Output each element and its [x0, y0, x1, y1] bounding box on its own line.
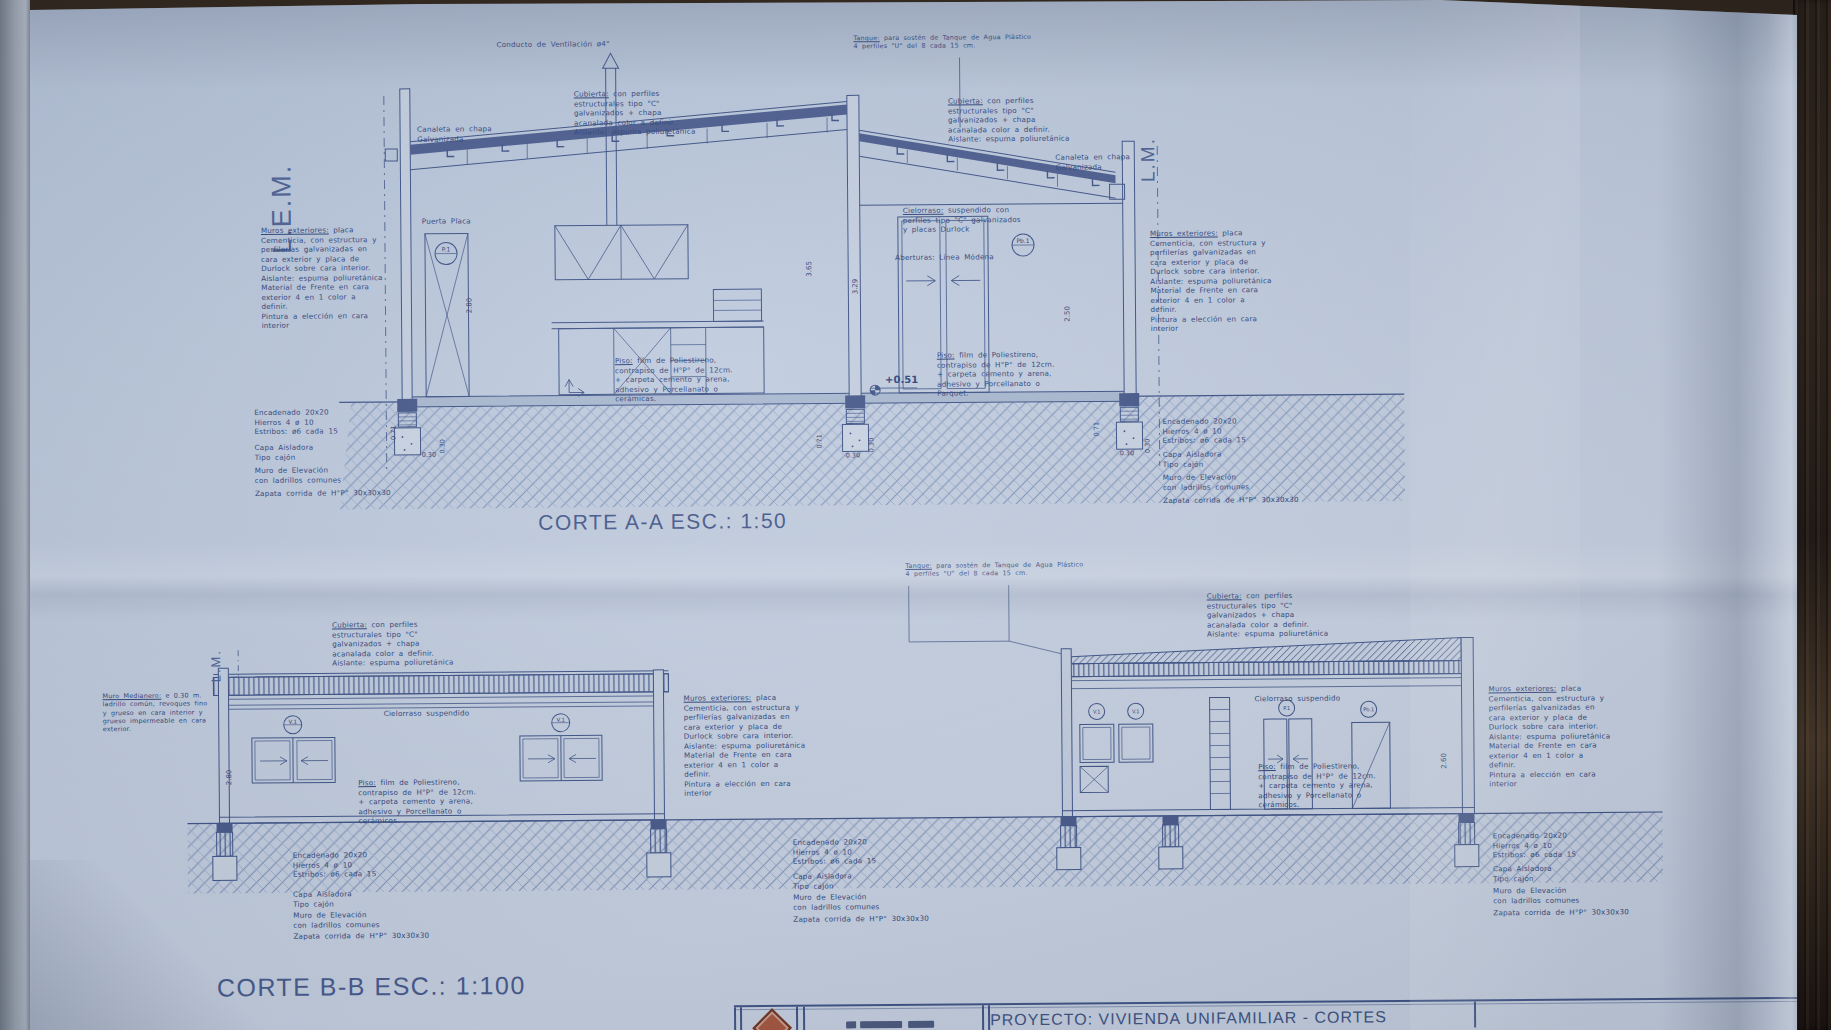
annotation-stemwall-left-b: Muro de Elevación con ladrillos comunes [293, 910, 380, 930]
annotation-roof-left-b: Cubierta: con perfiles estructurales tip… [332, 620, 454, 668]
label-lm-b: L.M. [208, 649, 223, 682]
annotation-floor-left-a: Piso: film de Poliestireno, contrapiso d… [615, 355, 733, 403]
annotation-vent-duct: Conducto de Ventilación ø4" [496, 39, 609, 49]
project-title: PROYECTO: VIVIENDA UNIFAMILIAR - CORTES [990, 1008, 1387, 1029]
dim-030: 0.30 [1120, 449, 1135, 457]
wall-center-a [847, 95, 861, 398]
dim-071: 0.71 [815, 434, 823, 449]
annotation-dampproof-center-b: Capa Aisladora Tipo cajón [793, 871, 852, 890]
footing-left-a [394, 399, 420, 455]
dim-071: 0.71 [1092, 422, 1100, 437]
sheet-content: P.1 Pb.1 V.1 V.1 V.1 V.1 P.1 Pb.1 Conduc… [0, 0, 1831, 1030]
vent-duct [602, 53, 619, 225]
dim-030: 0.30 [439, 439, 447, 454]
annotation-footing-left-b: Zapata corrida de H°P° 30x30x30 [293, 931, 429, 942]
annotation-ceiling-right-b: Cielorraso suspendido [1255, 694, 1341, 704]
annotation-beam-right-b: Encadenado 20x20 Hierros 4 ø 10 Estribos… [1493, 831, 1577, 860]
annotation-footing-right-b: Zapata corrida de H°P° 30x30x30 [1493, 907, 1629, 918]
section-title-b: CORTE B-B ESC.: 1:100 [217, 971, 526, 1002]
door-symbol-label: Pb.1 [1363, 706, 1374, 712]
dim-030: 0.30 [422, 451, 437, 459]
footing-right-a [1116, 393, 1142, 449]
annotation-floor-right-a: Piso: film de Poliestireno, contrapiso d… [937, 350, 1055, 398]
annotation-tank-a: Tanque: para sostén de Tanque de Agua Pl… [853, 33, 1031, 51]
annotation-walls-right-b: Muros exteriores: placa Cementicia, con … [1488, 683, 1610, 788]
annotation-gutter-right-a: Canaleta en chapa Galvanizada [1055, 152, 1130, 172]
annotation-floor-right-b: Piso: film de Poliestireno, contrapiso d… [1258, 761, 1376, 809]
window-symbol-label: V.1 [289, 719, 297, 725]
dim-280-b: 2.80 [225, 770, 233, 786]
annotation-openings-a: Aberturas: Línea Módena [895, 252, 994, 262]
dim-030: 0.30 [1144, 439, 1152, 454]
level-label: +0.51 [885, 374, 918, 385]
door-symbol-label: Pb.1 [1016, 237, 1029, 244]
annotation-dampproof-right-a: Capa Aisladora Tipo cajón [1163, 449, 1222, 468]
annotation-walls-left-a: Muros exteriores: placa Cementicia, con … [261, 225, 383, 330]
wall-right-a [1122, 141, 1136, 396]
annotation-tank-b: Tanque: para sostén de Tanque de Agua Pl… [905, 561, 1083, 579]
paper-stack-edge [0, 0, 30, 1030]
annotation-stemwall-center-b: Muro de Elevación con ladrillos comunes [793, 892, 880, 912]
dim-280-a: 2.80 [465, 298, 473, 314]
annotation-footing-center-b: Zapata corrida de H°P° 30x30x30 [793, 914, 929, 925]
dim-030: 0.30 [846, 451, 861, 459]
dim-030: 0.30 [868, 438, 876, 453]
annotation-footing-left-a: Zapata corrida de H°P° 30x30x30 [255, 488, 391, 499]
wood-table-edge [1793, 0, 1831, 1030]
annotation-beam-left-a: Encadenado 20x20 Hierros 4 ø 10 Estribos… [254, 407, 338, 436]
window-symbol-label: V.1 [1132, 708, 1140, 714]
label-lm-a: L.M. [1137, 137, 1159, 182]
annotation-beam-left-b: Encadenado 20x20 Hierros 4 ø 10 Estribos… [293, 850, 377, 879]
wall-left-a [400, 89, 412, 402]
dim-250-a: 2.50 [1063, 306, 1071, 322]
annotation-roof-left-a: Cubierta: con perfiles estructurales tip… [574, 89, 696, 137]
annotation-walls-center-b: Muros exteriores: placa Cementicia, con … [684, 693, 806, 798]
footing-center-a [842, 395, 868, 451]
annotation-door-a: Puerta Placa [422, 216, 471, 226]
drawing-linework: P.1 Pb.1 V.1 V.1 V.1 V.1 P.1 Pb.1 [0, 0, 1831, 1030]
dim-365-a: 3.65 [805, 261, 813, 277]
annotation-gutter-left-a: Canaleta en chapa Galvanizada [417, 124, 492, 144]
studio-logo [752, 1008, 792, 1030]
window-symbol-label: V.1 [1093, 708, 1101, 714]
door-symbol-label: P.1 [442, 246, 451, 253]
annotation-party-wall-b: Muro Medianero: e 0.30 m. ladrillo común… [102, 691, 220, 734]
section-title-a: CORTE A-A ESC.: 1:50 [538, 509, 787, 535]
illegible-text-mark [846, 1021, 856, 1028]
door-puerta-placa [425, 233, 469, 396]
dim-260-b: 2.60 [1440, 753, 1448, 769]
annotation-ceiling-left-b: Cielorraso suspendido [384, 708, 470, 718]
annotation-beam-center-b: Encadenado 20x20 Hierros 4 ø 10 Estribos… [793, 837, 877, 866]
annotation-stemwall-right-b: Muro de Elevación con ladrillos comunes [1493, 886, 1580, 906]
dim-329-a: 3.29 [851, 279, 859, 295]
photo-of-blueprint: P.1 Pb.1 V.1 V.1 V.1 V.1 P.1 Pb.1 Conduc… [0, 0, 1831, 1030]
annotation-dampproof-left-b: Capa Aisladora Tipo cajón [293, 889, 352, 908]
annotation-footing-right-a: Zapata corrida de H°P° 30x30x30 [1163, 495, 1299, 506]
annotation-stemwall-right-a: Muro de Elevación con ladrillos comunes [1163, 472, 1250, 492]
door-symbol-label: P.1 [1283, 705, 1290, 711]
annotation-beam-right-a: Encadenado 20x20 Hierros 4 ø 10 Estribos… [1162, 416, 1246, 445]
annotation-floor-left-b: Piso: film de Poliestireno, contrapiso d… [358, 777, 476, 825]
blueprint-sheet: P.1 Pb.1 V.1 V.1 V.1 V.1 P.1 Pb.1 Conduc… [0, 0, 1831, 1030]
illegible-text-mark [908, 1021, 934, 1028]
annotation-roof-right-a: Cubierta: con perfiles estructurales tip… [948, 96, 1070, 144]
annotation-dampproof-left-a: Capa Aisladora Tipo cajón [255, 443, 314, 462]
annotation-stemwall-left-a: Muro de Elevación con ladrillos comunes [255, 465, 342, 485]
dim-071: 0.71 [389, 425, 397, 440]
window-symbol-label: V.1 [557, 717, 565, 723]
annotation-dampproof-right-b: Capa Aisladora Tipo cajón [1493, 864, 1552, 883]
annotation-walls-right-a: Muros exteriores: placa Cementicia, con … [1150, 228, 1272, 333]
annotation-ceiling-a: Cielorraso: suspendido con perfiles tipo… [903, 205, 1021, 234]
annotation-roof-right-b: Cubierta: con perfiles estructurales tip… [1207, 591, 1329, 639]
illegible-text-mark [860, 1021, 902, 1028]
gutter-left-a [385, 149, 397, 161]
